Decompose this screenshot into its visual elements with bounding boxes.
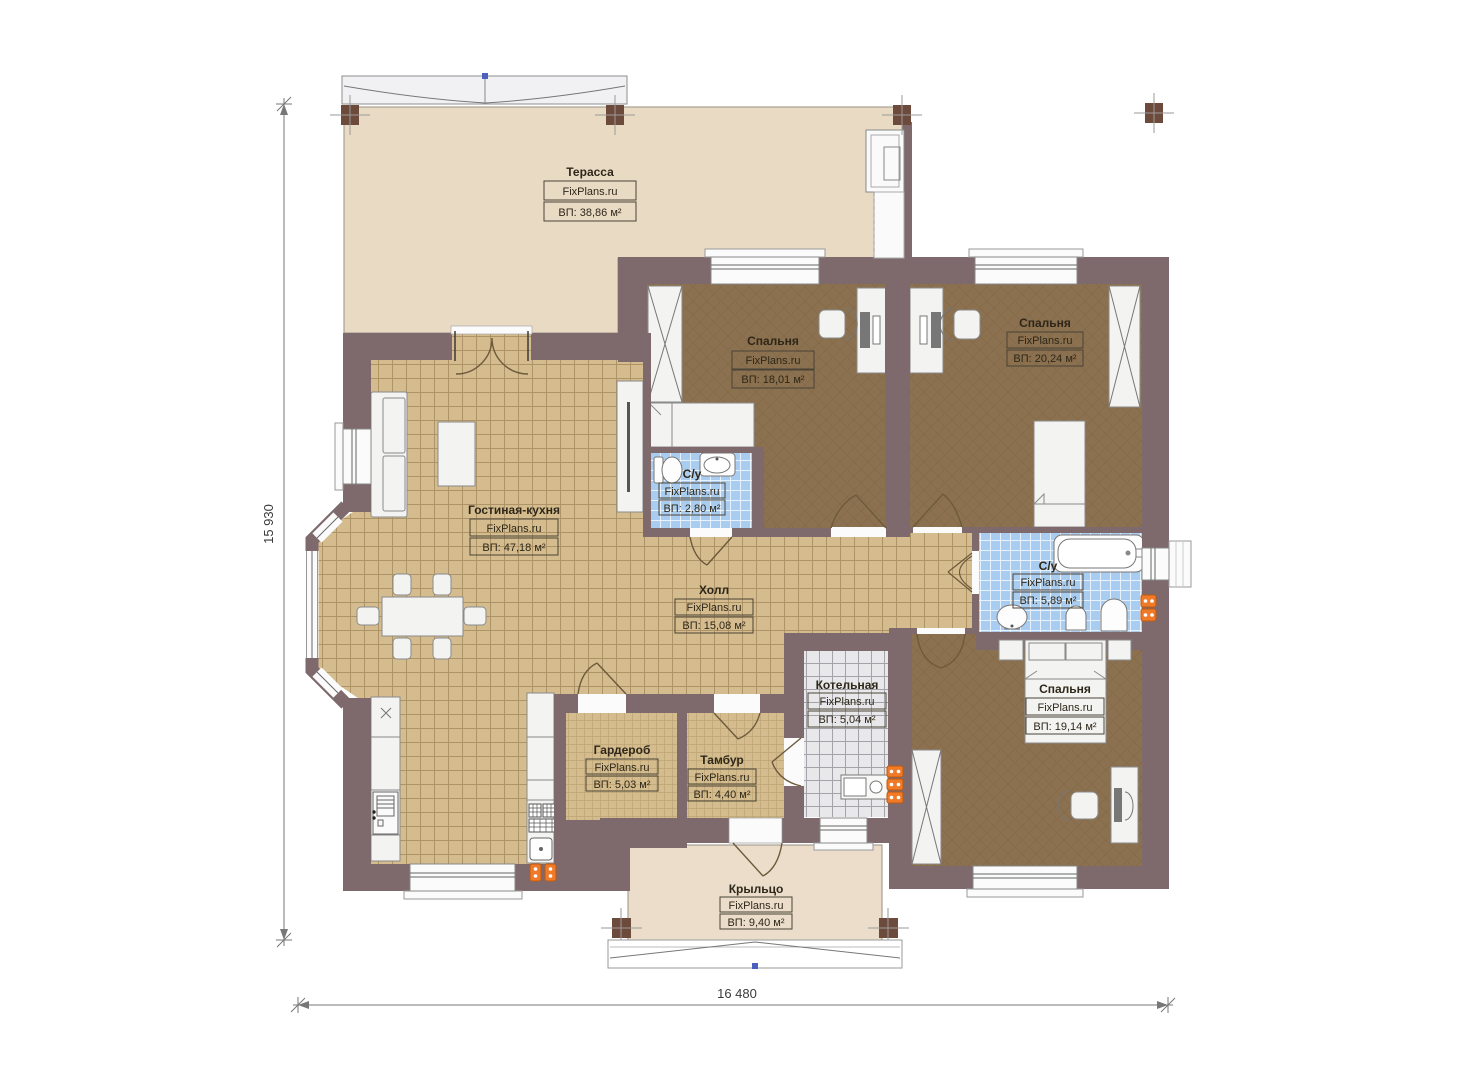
svg-text:FixPlans.ru: FixPlans.ru [819, 696, 874, 708]
svg-text:FixPlans.ru: FixPlans.ru [1020, 577, 1075, 589]
svg-text:ВП: 5,03 м²: ВП: 5,03 м² [593, 779, 650, 791]
svg-text:ВП: 47,18 м²: ВП: 47,18 м² [482, 542, 546, 554]
svg-text:Тамбур: Тамбур [700, 753, 744, 767]
svg-text:ВП: 9,40 м²: ВП: 9,40 м² [727, 917, 784, 929]
svg-text:FixPlans.ru: FixPlans.ru [594, 762, 649, 774]
svg-text:ВП: 18,01 м²: ВП: 18,01 м² [741, 374, 805, 386]
svg-text:ВП: 20,24 м²: ВП: 20,24 м² [1013, 353, 1077, 365]
svg-text:ВП: 19,14 м²: ВП: 19,14 м² [1033, 721, 1097, 733]
svg-text:ВП: 4,40 м²: ВП: 4,40 м² [693, 789, 750, 801]
svg-text:ВП: 38,86 м²: ВП: 38,86 м² [558, 207, 622, 219]
svg-text:FixPlans.ru: FixPlans.ru [728, 900, 783, 912]
svg-text:FixPlans.ru: FixPlans.ru [745, 355, 800, 367]
svg-text:FixPlans.ru: FixPlans.ru [664, 486, 719, 498]
svg-text:ВП: 5,04 м²: ВП: 5,04 м² [818, 714, 875, 726]
svg-text:Гостиная-кухня: Гостиная-кухня [468, 503, 560, 517]
svg-text:FixPlans.ru: FixPlans.ru [686, 602, 741, 614]
svg-text:FixPlans.ru: FixPlans.ru [486, 523, 541, 535]
svg-text:FixPlans.ru: FixPlans.ru [1037, 702, 1092, 714]
svg-text:FixPlans.ru: FixPlans.ru [1017, 335, 1072, 347]
svg-text:С/у: С/у [683, 467, 702, 481]
svg-text:15 930: 15 930 [261, 504, 276, 544]
svg-text:С/у: С/у [1039, 559, 1058, 573]
svg-text:FixPlans.ru: FixPlans.ru [694, 772, 749, 784]
svg-text:Котельная: Котельная [816, 678, 879, 692]
svg-text:Холл: Холл [699, 583, 729, 597]
svg-text:ВП: 2,80 м²: ВП: 2,80 м² [663, 503, 720, 515]
svg-text:ВП: 5,89 м²: ВП: 5,89 м² [1019, 595, 1076, 607]
svg-text:FixPlans.ru: FixPlans.ru [562, 186, 617, 198]
svg-text:16 480: 16 480 [717, 986, 757, 1001]
svg-text:Спальня: Спальня [747, 334, 799, 348]
svg-text:Крыльцо: Крыльцо [729, 882, 784, 896]
svg-text:Спальня: Спальня [1039, 682, 1091, 696]
svg-text:ВП: 15,08 м²: ВП: 15,08 м² [682, 620, 746, 632]
svg-text:Гардероб: Гардероб [594, 743, 651, 757]
svg-text:Терасса: Терасса [566, 165, 614, 179]
svg-text:Спальня: Спальня [1019, 316, 1071, 330]
